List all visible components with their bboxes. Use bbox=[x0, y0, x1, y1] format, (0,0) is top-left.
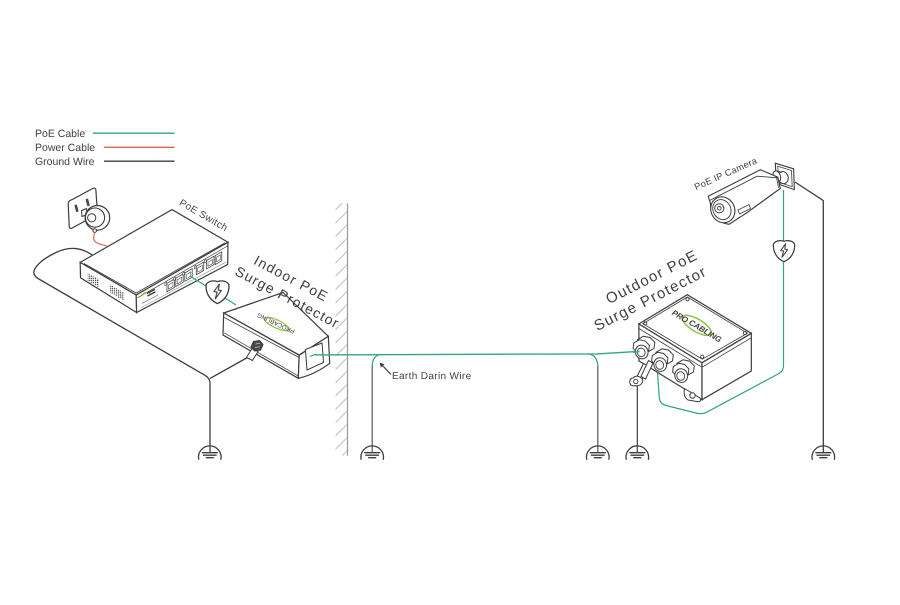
svg-text:Earth Darin Wire: Earth Darin Wire bbox=[392, 371, 472, 382]
svg-text:PoE Cable: PoE Cable bbox=[35, 128, 85, 140]
svg-text:Ground Wire: Ground Wire bbox=[35, 156, 95, 168]
svg-text:Power Cable: Power Cable bbox=[35, 142, 95, 154]
